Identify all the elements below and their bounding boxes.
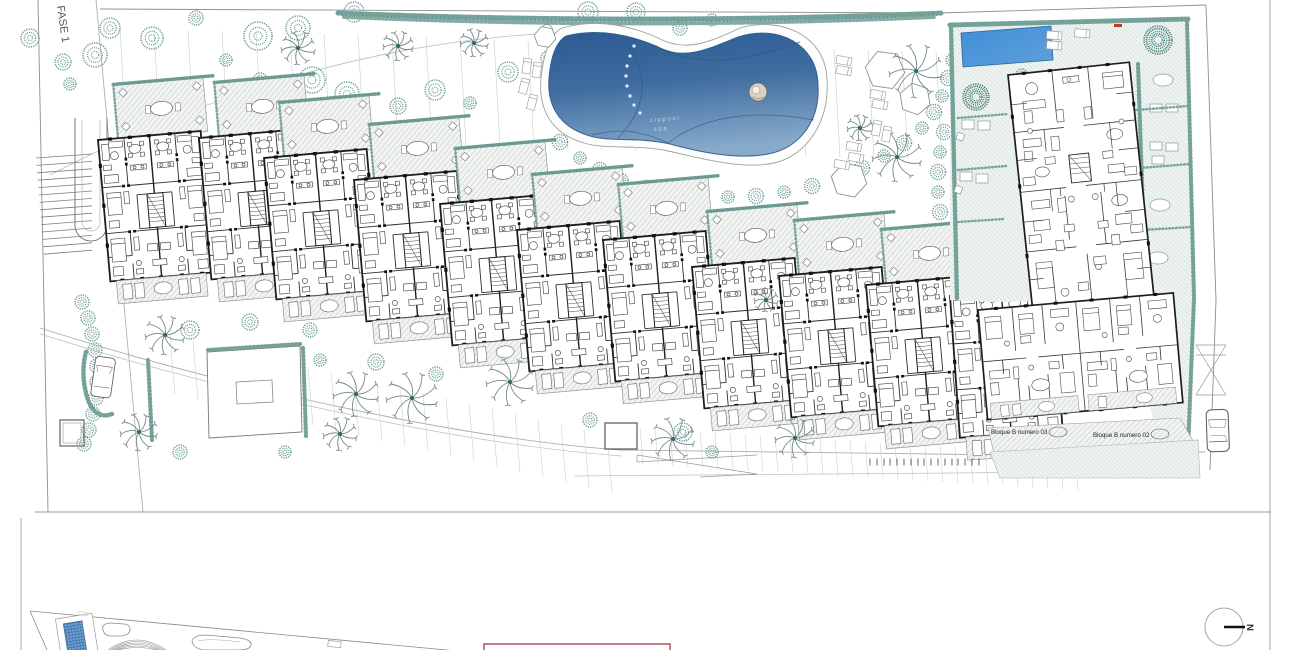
svg-text:Bloque B numero 03: Bloque B numero 03 [991, 429, 1048, 436]
svg-text:N: N [1244, 624, 1255, 631]
svg-text:Bloque B numero 02: Bloque B numero 02 [1093, 432, 1150, 439]
svg-text:s p a: s p a [654, 126, 668, 133]
